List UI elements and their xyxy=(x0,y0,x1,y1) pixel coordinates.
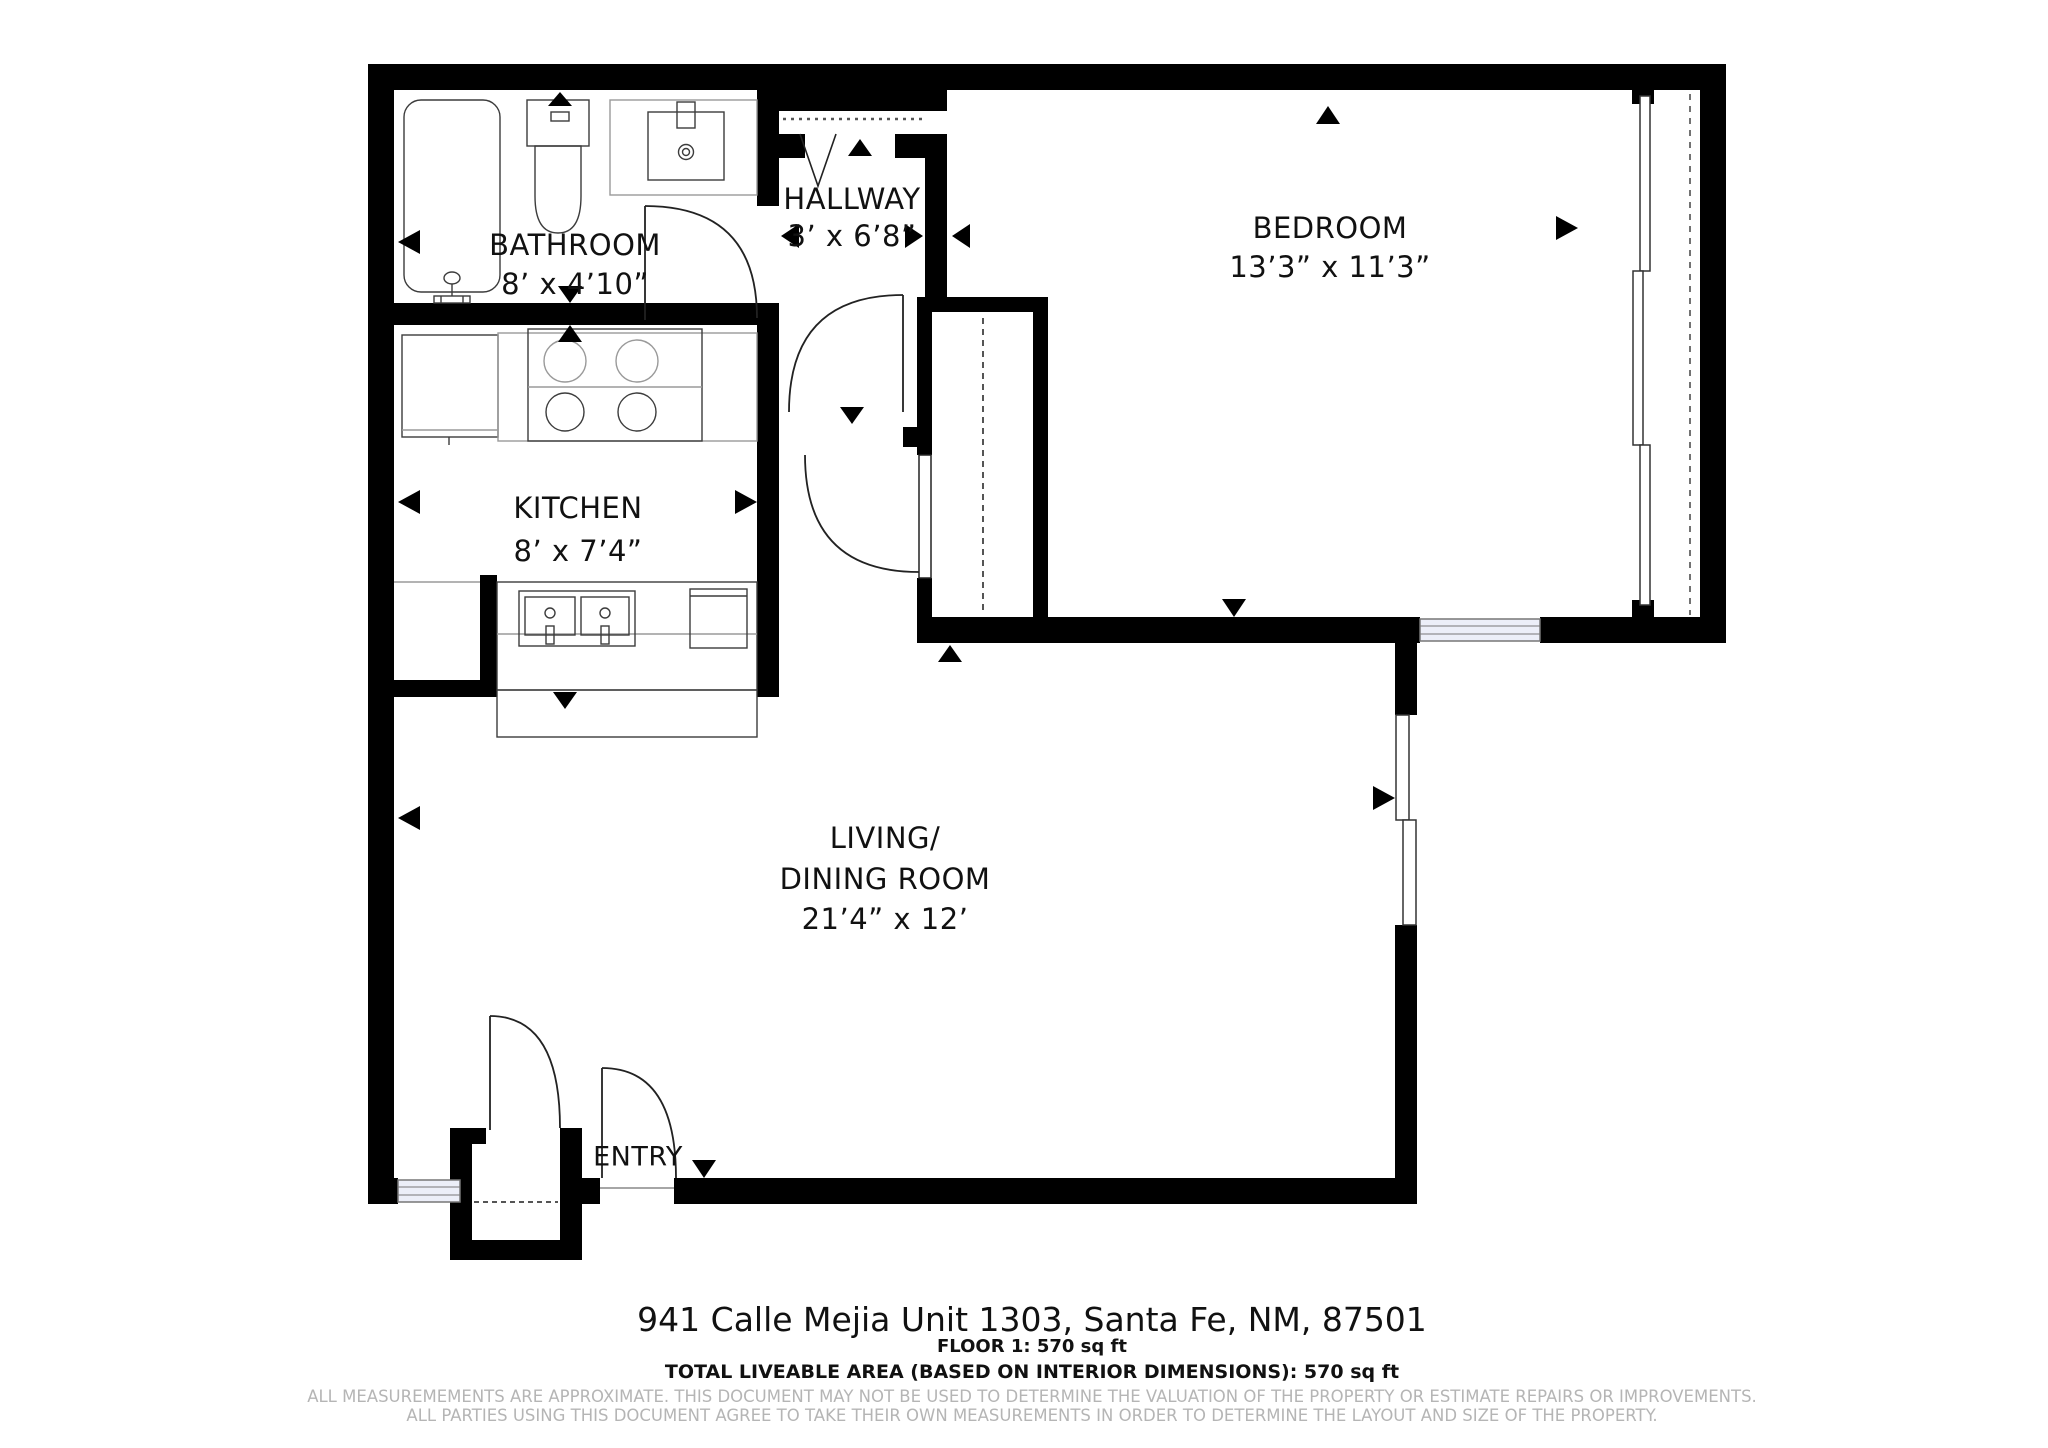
disclaimer-line-1: ALL MEASUREMEMENTS ARE APPROXIMATE. THIS… xyxy=(0,1387,2048,1406)
living-dims: 21’4” x 12’ xyxy=(802,902,969,936)
hallway-label: HALLWAY xyxy=(783,182,920,216)
kitchen-dims: 8’ x 7’4” xyxy=(514,534,643,568)
kitchen-fixtures xyxy=(394,329,757,737)
disclaimer-line-2: ALL PARTIES USING THIS DOCUMENT AGREE TO… xyxy=(0,1406,2048,1425)
bedroom-label: BEDROOM xyxy=(1253,211,1408,245)
living-label-line2: DINING ROOM xyxy=(780,862,991,896)
floorplan-drawing xyxy=(0,0,2048,1448)
entry-label: ENTRY xyxy=(593,1142,683,1173)
living-label-line1: LIVING/ xyxy=(830,821,941,855)
bathroom-label: BATHROOM xyxy=(489,228,661,262)
hallway-dims: 3’ x 6’8” xyxy=(788,219,917,253)
floorplan-page: BATHROOM 8’ x 4’10” HALLWAY 3’ x 6’8” BE… xyxy=(0,0,2048,1448)
total-area-text: TOTAL LIVEABLE AREA (BASED ON INTERIOR D… xyxy=(0,1361,2048,1383)
property-address: 941 Calle Mejia Unit 1303, Santa Fe, NM,… xyxy=(0,1300,2048,1339)
bathroom-dims: 8’ x 4’10” xyxy=(501,267,649,301)
floor-area-text: FLOOR 1: 570 sq ft xyxy=(0,1336,2048,1357)
kitchen-label: KITCHEN xyxy=(513,491,642,525)
bedroom-dims: 13’3” x 11’3” xyxy=(1229,250,1430,284)
